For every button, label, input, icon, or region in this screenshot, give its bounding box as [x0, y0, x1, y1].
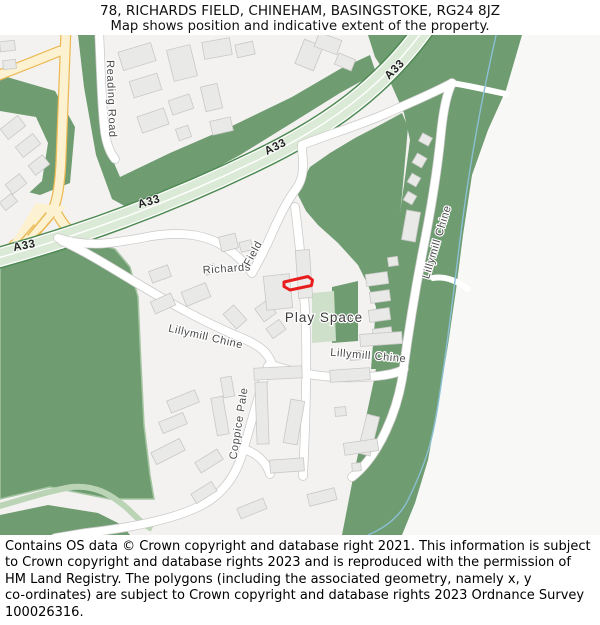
building: [360, 332, 403, 347]
footer-line: 100026316.: [5, 605, 595, 621]
building: [365, 272, 388, 287]
building: [369, 290, 390, 304]
footer-line: to Crown copyright and database rights 2…: [5, 555, 595, 571]
building: [255, 382, 269, 444]
building: [387, 256, 398, 266]
map: A33 A33 A33 A33 Reading Road Richards Fi…: [0, 35, 600, 535]
building: [368, 308, 390, 323]
map-description: Map shows position and indicative extent…: [0, 19, 600, 34]
footer-line: Contains OS data © Crown copyright and d…: [5, 539, 595, 555]
building: [352, 463, 362, 472]
footer-copyright: Contains OS data © Crown copyright and d…: [0, 535, 600, 621]
building: [295, 250, 312, 299]
property-address-title: 78, RICHARDS FIELD, CHINEHAM, BASINGSTOK…: [0, 3, 600, 19]
footer-line: HM Land Registry. The polygons (includin…: [5, 572, 595, 588]
building: [330, 368, 371, 383]
building: [270, 458, 305, 473]
building: [3, 59, 17, 69]
play-space-label: Play Space: [285, 310, 363, 325]
building: [254, 366, 303, 380]
building: [0, 40, 15, 52]
building: [335, 407, 347, 417]
building: [263, 274, 292, 311]
header: 78, RICHARDS FIELD, CHINEHAM, BASINGSTOK…: [0, 0, 600, 35]
map-container: A33 A33 A33 A33 Reading Road Richards Fi…: [0, 35, 600, 535]
footer-line: co-ordinates) are subject to Crown copyr…: [5, 588, 595, 604]
